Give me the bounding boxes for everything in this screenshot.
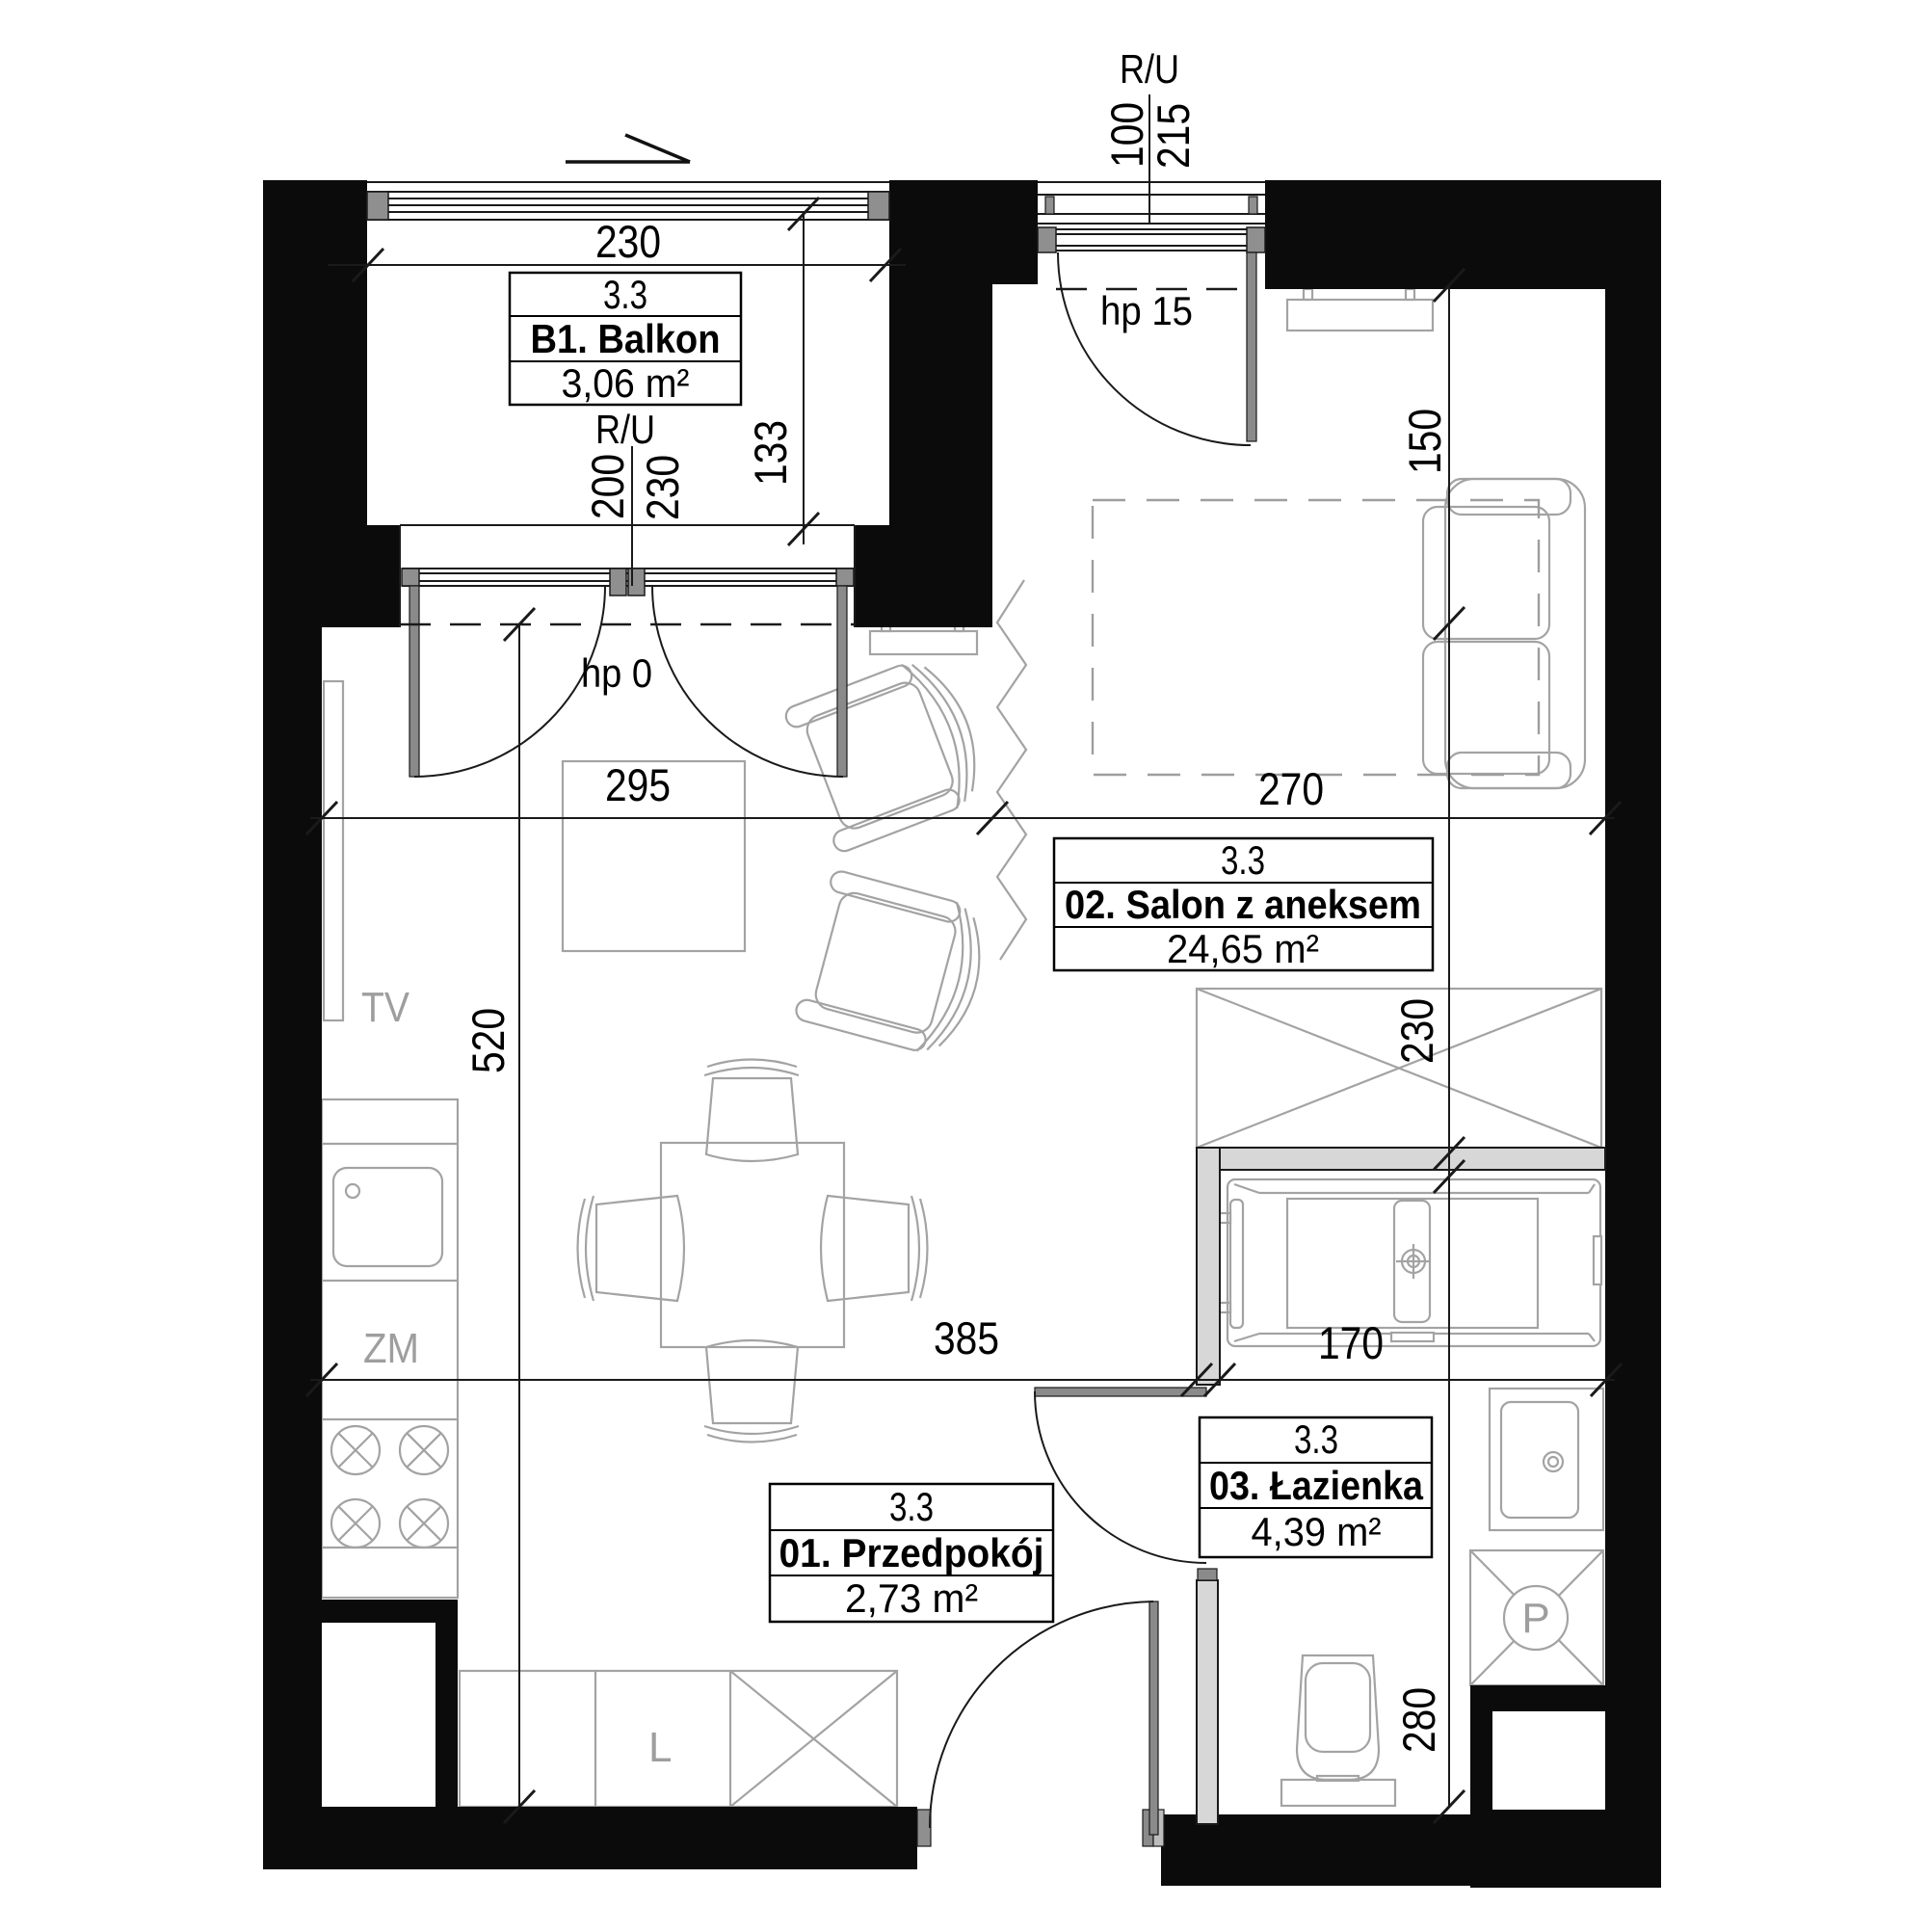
svg-text:24,65 m²: 24,65 m² (1167, 926, 1319, 971)
svg-text:L: L (648, 1724, 672, 1771)
svg-text:215: 215 (1148, 103, 1199, 169)
svg-text:280: 280 (1393, 1687, 1444, 1753)
svg-text:P: P (1521, 1595, 1549, 1642)
svg-text:230: 230 (1391, 998, 1442, 1064)
svg-text:3.3: 3.3 (1221, 837, 1265, 883)
svg-text:3,06 m²: 3,06 m² (562, 360, 690, 406)
svg-text:03. Łazienka: 03. Łazienka (1209, 1463, 1424, 1508)
svg-text:hp 15: hp 15 (1100, 288, 1193, 333)
svg-text:230: 230 (595, 216, 661, 267)
svg-text:270: 270 (1258, 763, 1324, 814)
svg-text:200: 200 (582, 454, 633, 519)
svg-text:hp 0: hp 0 (581, 650, 652, 696)
svg-text:2,73 m²: 2,73 m² (845, 1575, 978, 1621)
svg-text:520: 520 (462, 1008, 514, 1073)
svg-text:3.3: 3.3 (889, 1484, 934, 1529)
svg-text:170: 170 (1318, 1317, 1384, 1368)
svg-text:B1. Balkon: B1. Balkon (531, 316, 721, 361)
svg-text:R/U: R/U (595, 407, 655, 452)
svg-text:295: 295 (605, 759, 671, 810)
svg-text:150: 150 (1399, 409, 1450, 474)
svg-text:3.3: 3.3 (1294, 1416, 1338, 1462)
svg-text:ZM: ZM (363, 1325, 419, 1372)
svg-text:133: 133 (745, 420, 796, 486)
svg-text:R/U: R/U (1120, 46, 1179, 92)
svg-text:01. Przedpokój: 01. Przedpokój (779, 1530, 1044, 1575)
svg-text:02. Salon z aneksem: 02. Salon z aneksem (1065, 882, 1421, 927)
svg-text:385: 385 (934, 1312, 999, 1363)
svg-text:230: 230 (637, 455, 688, 520)
svg-text:TV: TV (361, 984, 410, 1031)
svg-text:100: 100 (1101, 102, 1152, 168)
svg-text:4,39 m²: 4,39 m² (1252, 1509, 1382, 1554)
svg-text:3.3: 3.3 (603, 272, 647, 317)
